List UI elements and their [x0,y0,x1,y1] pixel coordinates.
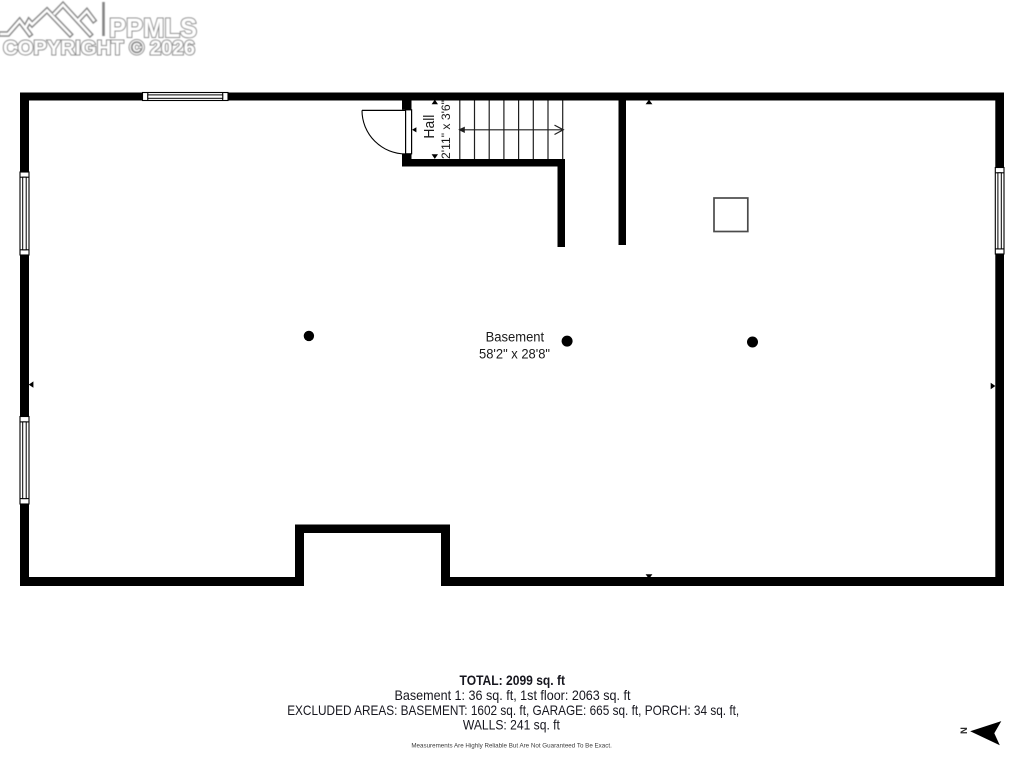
svg-text:Basement: Basement [486,329,545,345]
svg-text:58'2" x 28'8": 58'2" x 28'8" [479,347,550,362]
svg-text:EXCLUDED AREAS: BASEMENT: 1602: EXCLUDED AREAS: BASEMENT: 1602 sq. ft, G… [287,703,739,718]
svg-text:Hall: Hall [422,115,438,139]
svg-text:COPYRIGHT © 2026: COPYRIGHT © 2026 [3,38,195,60]
svg-text:TOTAL: 2099 sq. ft: TOTAL: 2099 sq. ft [460,673,566,688]
svg-text:Basement 1: 36 sq. ft, 1st flo: Basement 1: 36 sq. ft, 1st floor: 2063 s… [395,688,631,703]
svg-text:N: N [958,727,969,734]
svg-text:2'11" x 3'6": 2'11" x 3'6" [439,100,453,159]
svg-text:WALLS: 241 sq. ft: WALLS: 241 sq. ft [463,717,560,732]
svg-text:Measurements Are Highly Reliab: Measurements Are Highly Reliable But Are… [411,743,612,750]
